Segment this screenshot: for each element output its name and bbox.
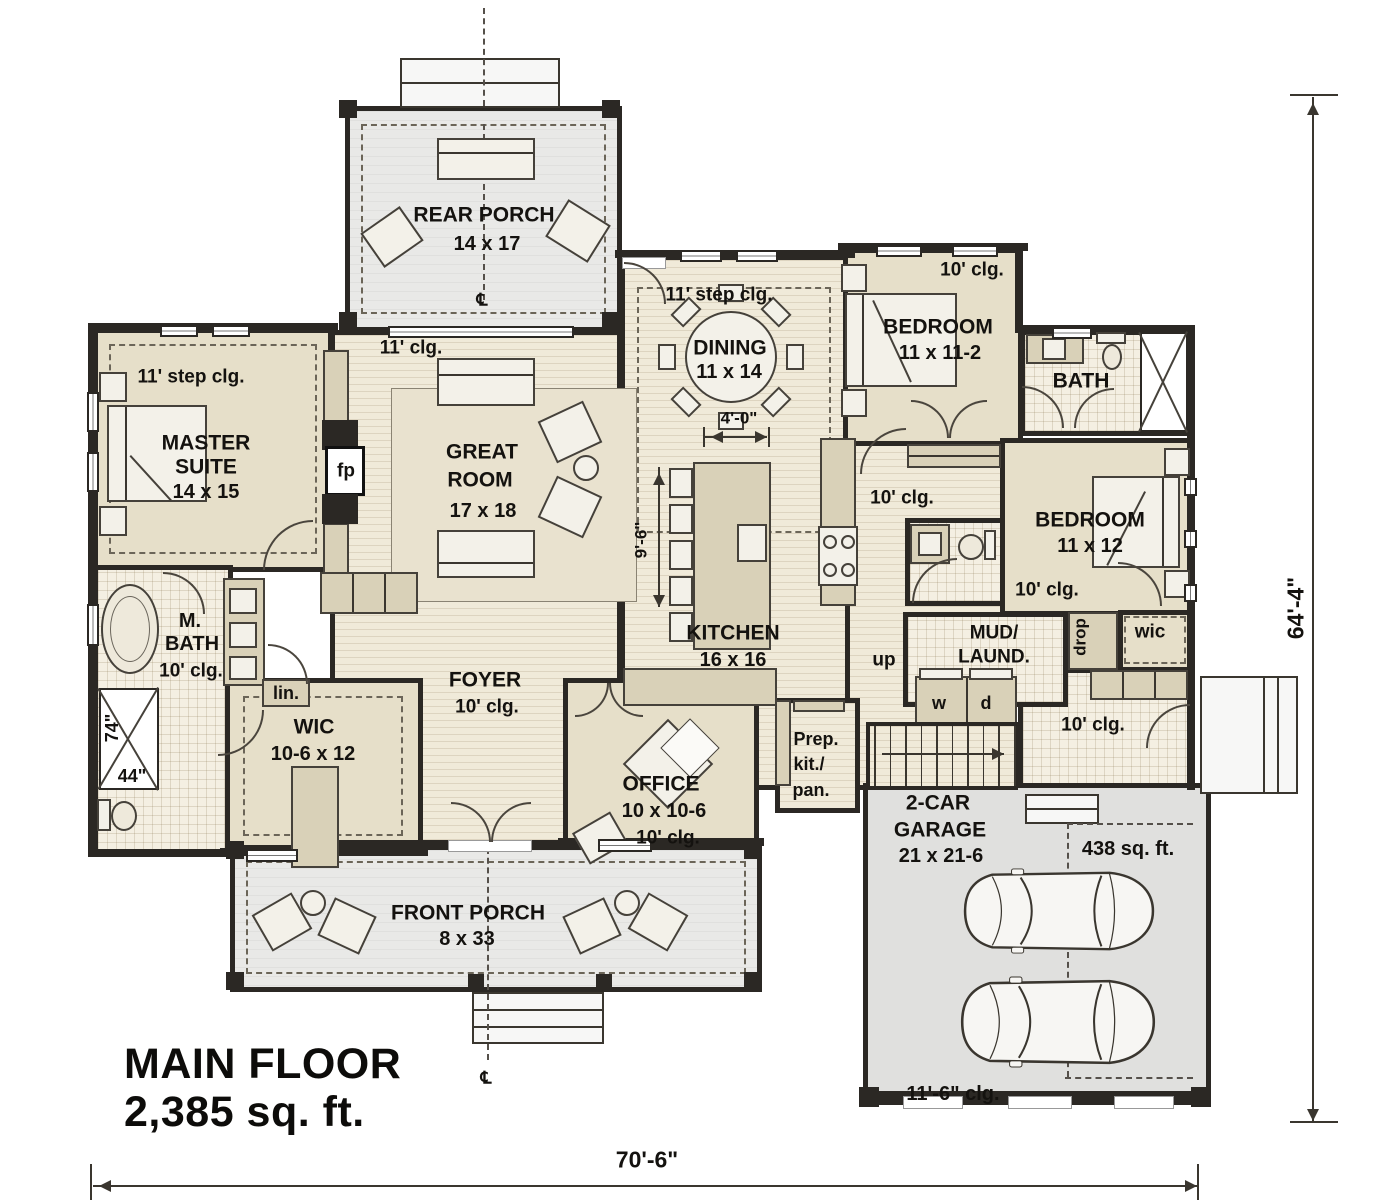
window bbox=[160, 325, 198, 337]
room-label-master-suite: SUITE bbox=[175, 457, 237, 478]
window bbox=[1184, 478, 1197, 496]
washer-top bbox=[919, 668, 963, 680]
arrow-head bbox=[1185, 1180, 1203, 1192]
centerline-symbol: ℄ bbox=[481, 1070, 492, 1087]
arrow-head bbox=[705, 431, 723, 443]
dim-tick bbox=[1197, 1164, 1199, 1200]
door-arc-hall bbox=[268, 644, 308, 684]
sliding-door bbox=[388, 326, 574, 338]
bedroom2-north-wall bbox=[838, 243, 1028, 251]
sofa-line bbox=[439, 152, 533, 154]
garage-post bbox=[1191, 1087, 1211, 1107]
overall-width-dim: 70'-6" bbox=[616, 1149, 678, 1172]
shower-width-dim: 44" bbox=[118, 767, 147, 785]
island-clearance-dim: 4'-0" bbox=[721, 410, 758, 427]
stair-tread bbox=[874, 726, 876, 786]
dim-tick bbox=[1290, 94, 1338, 96]
wic-dresser bbox=[291, 766, 339, 868]
porch-post bbox=[744, 972, 762, 990]
window bbox=[87, 604, 99, 646]
centerline-symbol: ℄ bbox=[477, 292, 488, 309]
garage-centerline bbox=[1067, 823, 1193, 825]
toilet-bowl bbox=[958, 534, 984, 560]
window bbox=[680, 250, 722, 262]
stool bbox=[669, 504, 693, 534]
sink bbox=[918, 532, 942, 556]
sofa bbox=[437, 358, 535, 406]
ceiling-label-garage-hall: 10' clg. bbox=[1061, 716, 1125, 735]
stair-direction-arrow bbox=[882, 753, 1004, 755]
room-label-wic-right: wic bbox=[1135, 623, 1166, 642]
porch-post bbox=[744, 841, 762, 859]
nightstand bbox=[1164, 448, 1190, 476]
cabinet-line bbox=[352, 574, 354, 612]
porch-post bbox=[226, 841, 244, 859]
window bbox=[952, 245, 998, 257]
plan-title-line1: MAIN FLOOR bbox=[124, 1040, 401, 1088]
bathtub-inner bbox=[110, 596, 150, 662]
stool bbox=[669, 540, 693, 570]
dryer-label: d bbox=[981, 694, 992, 712]
cubby-line bbox=[1154, 672, 1156, 698]
sofa-line bbox=[439, 562, 533, 564]
car bbox=[958, 868, 1160, 954]
right-stoop bbox=[1200, 676, 1298, 794]
porch-post bbox=[339, 100, 357, 118]
toilet-tank bbox=[984, 530, 996, 560]
cubby-line bbox=[1122, 672, 1124, 698]
room-label-wic: WIC bbox=[294, 717, 335, 738]
arrow-head bbox=[653, 595, 665, 613]
front-step-line bbox=[474, 1026, 602, 1028]
garage-step-line bbox=[1027, 808, 1097, 810]
room-size-rear-porch: 14 x 17 bbox=[454, 234, 521, 254]
fireplace-cabinet bbox=[323, 350, 349, 422]
arrow-head bbox=[1307, 1109, 1319, 1127]
room-label-rear-porch: REAR PORCH bbox=[413, 205, 554, 226]
ceiling-label-dining: 11' step clg. bbox=[666, 286, 773, 305]
room-label-garage: 2-CAR bbox=[906, 793, 970, 814]
porch-post bbox=[339, 312, 357, 330]
burner bbox=[823, 563, 837, 577]
sofa-line bbox=[439, 374, 533, 376]
dim-tick bbox=[1290, 1121, 1338, 1123]
room-label-prep-pantry: Prep. bbox=[793, 730, 838, 748]
fireplace-label: fp bbox=[337, 462, 355, 481]
room-size-front-porch: 8 x 33 bbox=[439, 929, 495, 949]
ceiling-label-bedroom2: 10' clg. bbox=[940, 261, 1004, 280]
room-label-front-porch: FRONT PORCH bbox=[391, 903, 545, 924]
stoop-step-line bbox=[1263, 678, 1265, 792]
garage-door-opening bbox=[1008, 1096, 1072, 1109]
ceiling-label-bedroom3: 10' clg. bbox=[1015, 581, 1079, 600]
floor-plan-canvas: MAIN FLOOR 2,385 sq. ft. 70'-6"64'-4"9'-… bbox=[0, 0, 1388, 1200]
room-label-great-room: GREAT bbox=[446, 442, 518, 463]
room-label-great-room: ROOM bbox=[447, 470, 512, 491]
arrow-head bbox=[755, 431, 773, 443]
fireplace-wall bbox=[322, 494, 358, 524]
shower-length-dim: 74" bbox=[103, 714, 121, 743]
room-label-master-bath: M. bbox=[179, 611, 201, 631]
nightstand bbox=[99, 506, 127, 536]
room-label-bedroom2: BEDROOM bbox=[883, 317, 993, 338]
sink bbox=[229, 588, 257, 614]
porch-table bbox=[614, 890, 640, 916]
stool bbox=[669, 576, 693, 606]
arrow-head bbox=[653, 467, 665, 485]
island-sink bbox=[737, 524, 767, 562]
room-size-kitchen: 16 x 16 bbox=[700, 650, 767, 670]
overall-height-dim: 64'-4" bbox=[1285, 577, 1308, 639]
room-label-office: OFFICE bbox=[623, 774, 700, 795]
room-label-master-bath: BATH bbox=[165, 634, 219, 654]
rear-centerline bbox=[483, 8, 485, 106]
ceiling-label-office: 10' clg. bbox=[636, 829, 700, 848]
front-step-line bbox=[474, 1009, 602, 1011]
island-length-dim: 9'-6" bbox=[633, 522, 650, 559]
porch-sofa bbox=[437, 138, 535, 180]
dim-tick bbox=[768, 427, 770, 447]
headboard-line bbox=[1162, 478, 1164, 566]
room-label-foyer: FOYER bbox=[449, 670, 521, 691]
toilet-tank bbox=[97, 799, 111, 831]
porch-post bbox=[596, 974, 612, 990]
stair-tread bbox=[967, 726, 969, 786]
pantry-counter bbox=[775, 700, 791, 786]
car bbox=[955, 976, 1161, 1068]
front-steps bbox=[472, 992, 604, 1044]
toilet-bowl bbox=[111, 801, 137, 831]
stair-tread bbox=[905, 726, 907, 786]
toilet-bowl bbox=[1102, 344, 1122, 370]
dining-chair bbox=[786, 344, 804, 370]
stool bbox=[669, 468, 693, 498]
toilet-tank bbox=[1096, 332, 1126, 344]
hall-cabinet bbox=[320, 572, 418, 614]
rear-step-line bbox=[402, 82, 558, 84]
room-label-prep-pantry: pan. bbox=[792, 781, 829, 799]
stairs-up-label: up bbox=[872, 651, 895, 670]
cubbies bbox=[1090, 670, 1188, 700]
window bbox=[876, 245, 922, 257]
room-size-bedroom3: 11 x 12 bbox=[1057, 536, 1123, 556]
ceiling-label-foyer: 10' clg. bbox=[455, 698, 519, 717]
room-label-prep-pantry: kit./ bbox=[793, 755, 824, 773]
stair-tread bbox=[1014, 726, 1016, 786]
room-size-master-suite: 14 x 15 bbox=[173, 482, 240, 502]
room-label-master-suite: MASTER bbox=[162, 433, 251, 454]
cabinet-line bbox=[384, 574, 386, 612]
room-label-bedroom3: BEDROOM bbox=[1035, 510, 1145, 531]
bedroom2-east-wall bbox=[1015, 243, 1023, 333]
sink bbox=[229, 656, 257, 680]
room-label-mud-laundry: MUD/ bbox=[970, 624, 1019, 643]
dim-tick bbox=[90, 1164, 92, 1200]
garage-centerline bbox=[1065, 1077, 1193, 1079]
stoop-step-line bbox=[1277, 678, 1279, 792]
arrow-head bbox=[93, 1180, 111, 1192]
burner bbox=[841, 535, 855, 549]
garage-post bbox=[859, 1087, 879, 1107]
room-label-dining: DINING bbox=[693, 338, 767, 359]
sink bbox=[1042, 338, 1066, 360]
island-length-dim-line bbox=[658, 467, 660, 607]
room-size-wic: 10-6 x 12 bbox=[271, 744, 356, 764]
headboard-line bbox=[862, 295, 864, 385]
shelf-line bbox=[909, 455, 999, 457]
stair-tread bbox=[921, 726, 923, 786]
room-label-garage: GARAGE bbox=[894, 820, 986, 841]
range bbox=[818, 526, 858, 586]
pantry-shelf bbox=[793, 700, 845, 712]
room-label-kitchen: KITCHEN bbox=[686, 623, 779, 644]
plan-title-line2: 2,385 sq. ft. bbox=[124, 1088, 401, 1136]
garage-area-label: 438 sq. ft. bbox=[1082, 839, 1174, 859]
mbath-south-wall bbox=[88, 849, 238, 857]
arrow-head bbox=[1307, 97, 1319, 115]
porch-post bbox=[226, 972, 244, 990]
plan-title: MAIN FLOOR 2,385 sq. ft. bbox=[124, 1040, 401, 1136]
drop-zone-label: drop bbox=[1072, 618, 1089, 656]
burner bbox=[823, 535, 837, 549]
porch-post bbox=[602, 100, 620, 118]
porch-table bbox=[300, 890, 326, 916]
window bbox=[87, 392, 99, 432]
porch-post bbox=[602, 312, 620, 330]
sink bbox=[229, 622, 257, 648]
room-size-bedroom2: 11 x 11-2 bbox=[899, 343, 981, 363]
nightstand bbox=[841, 264, 867, 292]
overall-height-dim-line bbox=[1312, 97, 1314, 1121]
room-label-mud-laundry: LAUND. bbox=[958, 648, 1030, 667]
wd-divider bbox=[966, 678, 968, 724]
stair-tread bbox=[952, 726, 954, 786]
dryer-top bbox=[969, 668, 1013, 680]
headboard-line bbox=[125, 407, 127, 500]
burner bbox=[841, 563, 855, 577]
arrow-head bbox=[992, 748, 1010, 760]
washer-label: w bbox=[932, 694, 946, 712]
stair-tread bbox=[890, 726, 892, 786]
side-table bbox=[573, 455, 599, 481]
window bbox=[212, 325, 250, 337]
window bbox=[736, 250, 778, 262]
kitchen-counter bbox=[623, 668, 777, 706]
ceiling-label-garage: 11'-6" clg. bbox=[906, 1084, 999, 1104]
garage-door-opening bbox=[1114, 1096, 1174, 1109]
front-centerline bbox=[487, 994, 489, 1060]
window bbox=[1052, 327, 1092, 339]
stair-tread bbox=[936, 726, 938, 786]
nightstand bbox=[841, 389, 867, 417]
room-label-bath2: BATH bbox=[1053, 371, 1110, 392]
ceiling-label-master: 11' step clg. bbox=[138, 368, 245, 387]
sofa bbox=[437, 530, 535, 578]
dim-tick bbox=[703, 427, 705, 447]
room-size-garage: 21 x 21-6 bbox=[899, 846, 984, 866]
porch-post bbox=[468, 974, 484, 990]
window bbox=[87, 452, 99, 492]
stair-tread bbox=[983, 726, 985, 786]
room-size-great-room: 17 x 18 bbox=[450, 501, 517, 521]
window bbox=[1184, 530, 1197, 548]
room-size-dining: 11 x 14 bbox=[696, 362, 762, 382]
window bbox=[1184, 584, 1197, 602]
dining-chair bbox=[658, 344, 676, 370]
ceiling-label-master-bath: 10' clg. bbox=[159, 662, 223, 681]
nightstand bbox=[99, 372, 127, 402]
linen-label: lin. bbox=[273, 684, 299, 702]
overall-width-dim-line bbox=[93, 1185, 1197, 1187]
ceiling-label-great-room: 11' clg. bbox=[380, 339, 443, 358]
window bbox=[246, 849, 298, 862]
ceiling-label-hall: 10' clg. bbox=[870, 489, 934, 508]
room-size-office: 10 x 10-6 bbox=[622, 801, 707, 821]
